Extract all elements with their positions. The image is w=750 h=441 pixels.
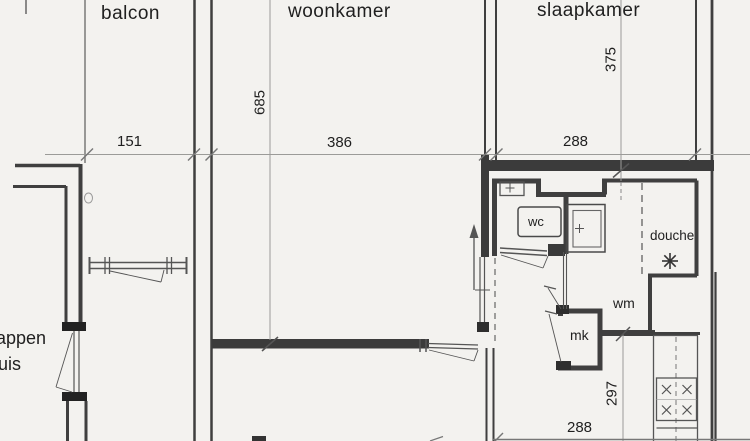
room-label-wc: wc [528, 215, 544, 228]
door-tick [544, 286, 556, 289]
door-swing-line [548, 288, 561, 309]
knob-circle [85, 193, 93, 203]
door-hinge-block [548, 244, 565, 256]
room-label-slaapkamer: slaapkamer [537, 1, 640, 20]
room-label-douche: douche [650, 229, 694, 243]
dimension-label-386: 386 [327, 135, 352, 150]
room-label-woonkamer: woonkamer [288, 2, 391, 21]
door-post [477, 322, 489, 332]
entrance-arrow-icon [470, 224, 479, 238]
room-label-balcon: balcon [101, 4, 160, 23]
dimension-label-288-bottom: 288 [567, 420, 592, 435]
door-swing-line [56, 387, 72, 392]
floorplan-canvas: balcon woonkamer slaapkamer 151 386 288 … [0, 0, 750, 441]
wall-segment [481, 155, 489, 257]
room-label-stairwell-line2: uis [0, 355, 21, 373]
toilet-cistern [500, 182, 524, 196]
floorplan-drawing [0, 0, 750, 441]
bedroom-bottom-wall [488, 160, 714, 171]
door-swing-line [543, 256, 548, 268]
dimension-label-297: 297 [605, 372, 620, 416]
livingroom-door-leaf [428, 344, 478, 346]
door-swing-line [110, 271, 161, 282]
doors-windows-layer [56, 193, 567, 392]
room-label-mk: mk [570, 328, 589, 342]
livingroom-bottom-wall [212, 339, 429, 349]
door-swing-line [474, 350, 478, 361]
door-swing-line [501, 255, 543, 268]
dimension-label-375: 375 [604, 38, 619, 82]
door-tick [545, 311, 557, 314]
door-swing-line [161, 270, 164, 282]
door-post [62, 322, 86, 331]
livingroom-door-leaf [428, 348, 478, 350]
wc-door-leaf [500, 248, 547, 251]
wc-door-leaf [500, 253, 547, 256]
dimension-tick [430, 437, 443, 441]
door-post [62, 392, 87, 401]
door-swing-line [549, 314, 561, 362]
room-label-stairwell-line1: appen [0, 329, 46, 347]
room-label-wm: wm [613, 296, 635, 310]
door-swing-line [56, 333, 73, 387]
door-swing-line [429, 350, 474, 361]
shower-star-icon [662, 253, 678, 269]
dimension-label-288-top: 288 [563, 134, 588, 149]
dimension-lines-layer [45, 0, 750, 441]
dimension-label-685: 685 [253, 81, 268, 125]
door-post [556, 361, 571, 370]
wall-stub [252, 436, 266, 441]
dimension-label-151: 151 [117, 134, 142, 149]
